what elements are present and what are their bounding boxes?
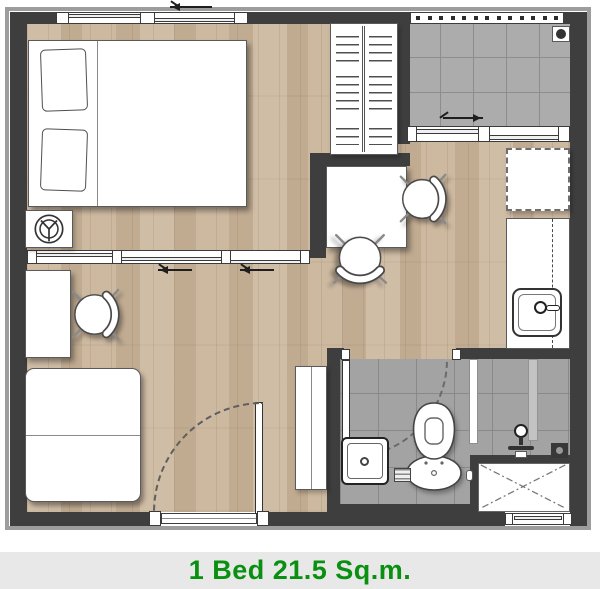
slide-direction-arrow xyxy=(443,117,483,119)
balcony-railing xyxy=(410,12,564,24)
hangers xyxy=(336,36,359,62)
bedside-stool xyxy=(25,210,73,248)
slide-direction-arrow xyxy=(158,269,192,271)
bath-door-post xyxy=(452,349,461,360)
hangers xyxy=(369,36,392,62)
wall-wardrobe-right xyxy=(397,12,410,144)
door-frame-post xyxy=(478,126,490,142)
faucet-lever xyxy=(546,305,560,311)
hangers xyxy=(369,76,392,110)
door-frame-post xyxy=(407,126,417,142)
sliding-partition xyxy=(27,250,310,264)
desk-chair xyxy=(66,283,129,346)
bedroom-sliding-window xyxy=(56,12,248,24)
sofa-cushion-split xyxy=(26,435,140,436)
basin-drain xyxy=(360,457,369,466)
caption-bar: 1 Bed 21.5 Sq.m. xyxy=(0,552,600,589)
shaft-window xyxy=(505,513,571,525)
partition-post xyxy=(27,250,37,264)
floor-plan: 1 Bed 21.5 Sq.m. xyxy=(0,0,600,589)
window-sash xyxy=(149,18,241,22)
stool-icon xyxy=(32,212,66,246)
window-frame-post xyxy=(140,12,155,24)
caption-text: 1 Bed 21.5 Sq.m. xyxy=(189,555,412,586)
bath-door-post xyxy=(341,349,350,360)
wall-dining-vertical xyxy=(310,153,326,258)
pillow xyxy=(40,48,88,112)
dining-chair-right xyxy=(394,168,456,230)
door-frame-post xyxy=(558,126,570,142)
slide-direction-arrow xyxy=(170,6,212,8)
partition-panel xyxy=(226,260,304,264)
slide-direction-arrow xyxy=(240,269,274,271)
toilet xyxy=(404,400,464,492)
wall-bottom-c xyxy=(571,512,587,526)
partition-panel xyxy=(34,253,120,257)
threshold-line xyxy=(162,518,256,519)
sofa xyxy=(25,368,141,502)
balcony-tile-floor xyxy=(407,24,570,129)
wall-top-a xyxy=(10,12,56,24)
shower-valve-base xyxy=(515,451,527,458)
cabinet-split xyxy=(311,367,312,489)
partition-post xyxy=(300,250,310,264)
window-sash xyxy=(514,516,562,520)
hangers xyxy=(336,128,359,145)
refrigerator-space xyxy=(506,148,570,211)
hangers xyxy=(336,76,359,110)
entry-door-post xyxy=(149,511,161,526)
window-frame-post xyxy=(563,513,572,525)
shaft-cross-lines xyxy=(479,464,569,511)
entry-threshold xyxy=(161,513,257,524)
wardrobe-rod xyxy=(362,26,365,152)
balcony-sliding-door xyxy=(407,126,570,142)
shower-set xyxy=(508,424,538,462)
railing-balusters xyxy=(411,13,563,23)
window-frame-post xyxy=(505,513,513,525)
wall-bath-bottom xyxy=(327,504,480,514)
balcony-drain xyxy=(552,26,570,42)
hangers xyxy=(369,128,392,145)
double-bed xyxy=(28,40,247,207)
arrow-tail xyxy=(170,0,179,7)
wall-shaft-left xyxy=(470,455,478,512)
partition-post xyxy=(112,250,122,264)
shower-stem xyxy=(519,437,523,445)
pillow xyxy=(40,128,88,192)
toilet-paper-holder xyxy=(394,468,411,482)
wall-bottom-b xyxy=(268,512,505,526)
drain-hole xyxy=(556,29,566,39)
shower-head xyxy=(514,424,528,438)
window-sash xyxy=(63,14,151,18)
wall-bath-top-b xyxy=(456,348,570,359)
wall-bottom-a xyxy=(10,512,152,526)
tall-cabinet xyxy=(295,366,327,490)
window-frame-post xyxy=(234,12,248,24)
dining-chair-bottom xyxy=(327,228,393,294)
window-frame-post xyxy=(56,12,69,24)
desk xyxy=(25,270,71,358)
toilet-brush xyxy=(466,470,473,481)
wash-basin xyxy=(341,437,389,485)
bed-headboard-line xyxy=(97,41,98,206)
partition-panel xyxy=(116,257,228,261)
shower-drain xyxy=(551,443,568,458)
shower-glass-partition xyxy=(469,359,478,444)
wall-bath-left xyxy=(327,348,340,514)
entry-door-post xyxy=(257,511,269,526)
service-shaft xyxy=(478,463,570,512)
wall-right xyxy=(570,12,587,526)
wardrobe xyxy=(330,23,398,155)
shower-valve-bar xyxy=(508,446,534,450)
door-sash xyxy=(486,135,566,140)
drain-hole xyxy=(556,447,563,454)
partition-post xyxy=(221,250,231,264)
